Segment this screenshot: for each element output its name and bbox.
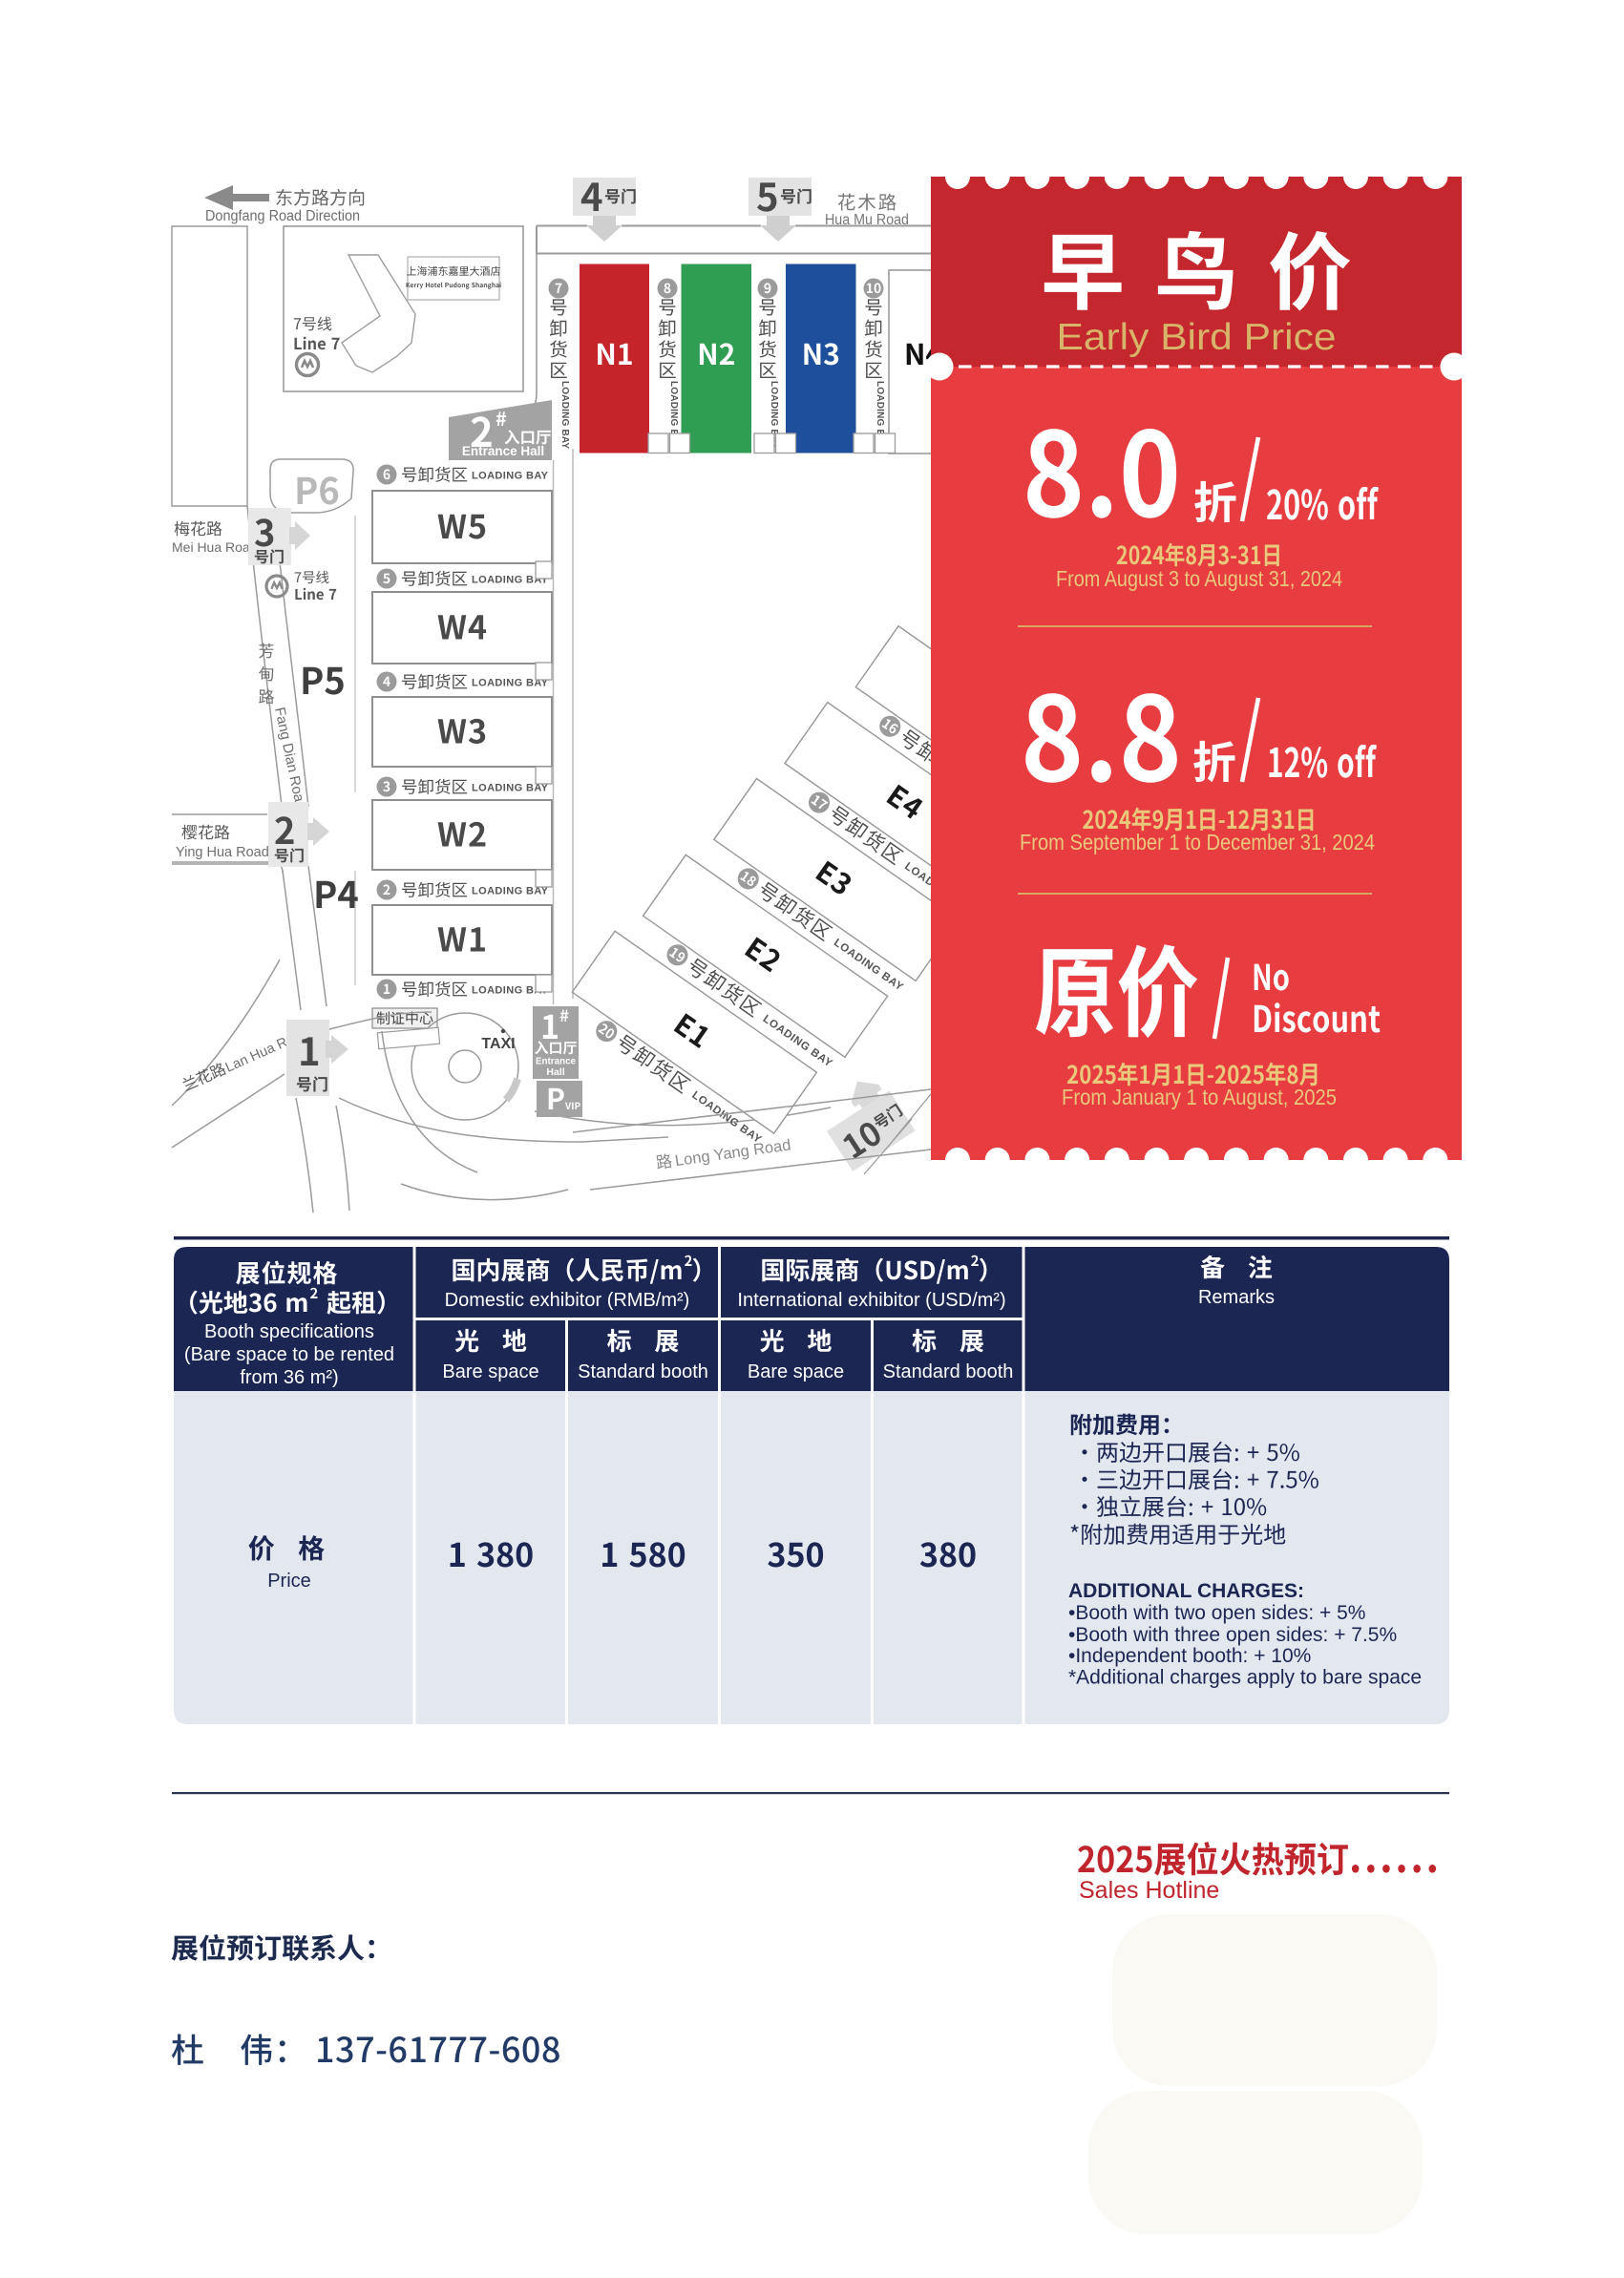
svg-text:Dongfang Road Direction: Dongfang Road Direction	[205, 208, 360, 224]
svg-text:LOADING BAY: LOADING BAY	[472, 471, 549, 482]
svg-text:Standard booth: Standard booth	[578, 1361, 708, 1382]
svg-text:Mei Hua Road: Mei Hua Road	[172, 539, 258, 555]
svg-text:Early Bird Price: Early Bird Price	[1057, 317, 1337, 358]
svg-text:(Bare space to be rented: (Bare space to be rented	[184, 1344, 394, 1365]
svg-text:Hall: Hall	[546, 1066, 564, 1078]
svg-text:Bare space: Bare space	[748, 1361, 844, 1382]
svg-text:International exhibitor (USD/m: International exhibitor (USD/m²)	[737, 1290, 1005, 1311]
svg-text:Booth specifications: Booth specifications	[204, 1321, 374, 1342]
svg-text:From January 1 to August, 2025: From January 1 to August, 2025	[1062, 1085, 1337, 1109]
svg-text:Ying Hua Road: Ying Hua Road	[176, 845, 269, 860]
svg-text:•Booth with three open sides:: •Booth with three open sides: + 7.5%	[1068, 1624, 1397, 1646]
svg-text:From September 1 to December 3: From September 1 to December 31, 2024	[1020, 830, 1375, 854]
svg-text:Hua Mu Road: Hua Mu Road	[825, 212, 909, 228]
svg-text:from 36 m²): from 36 m²)	[240, 1367, 338, 1388]
svg-text:•Independent booth: + 10%: •Independent booth: + 10%	[1068, 1645, 1311, 1667]
svg-text:Remarks: Remarks	[1198, 1287, 1275, 1308]
svg-text:Price: Price	[267, 1571, 311, 1592]
svg-text:Bare space: Bare space	[442, 1361, 538, 1382]
svg-text:Standard booth: Standard booth	[883, 1361, 1014, 1382]
svg-text:From August 3 to August 31, 20: From August 3 to August 31, 2024	[1056, 566, 1342, 591]
svg-text:TAXI: TAXI	[481, 1036, 515, 1052]
svg-text:Entrance Hall: Entrance Hall	[462, 444, 544, 458]
svg-text:LOADING BAY: LOADING BAY	[559, 381, 570, 449]
svg-text:•Booth with two open sides: +: •Booth with two open sides: + 5%	[1068, 1602, 1365, 1624]
svg-text:Entrance: Entrance	[536, 1056, 576, 1067]
svg-text:Domestic exhibitor (RMB/m²): Domestic exhibitor (RMB/m²)	[445, 1290, 690, 1311]
svg-text:*Additional charges apply to b: *Additional charges apply to bare space	[1068, 1667, 1422, 1689]
svg-text:Sales Hotline: Sales Hotline	[1079, 1877, 1219, 1904]
svg-text:ADDITIONAL CHARGES:: ADDITIONAL CHARGES:	[1068, 1580, 1304, 1602]
